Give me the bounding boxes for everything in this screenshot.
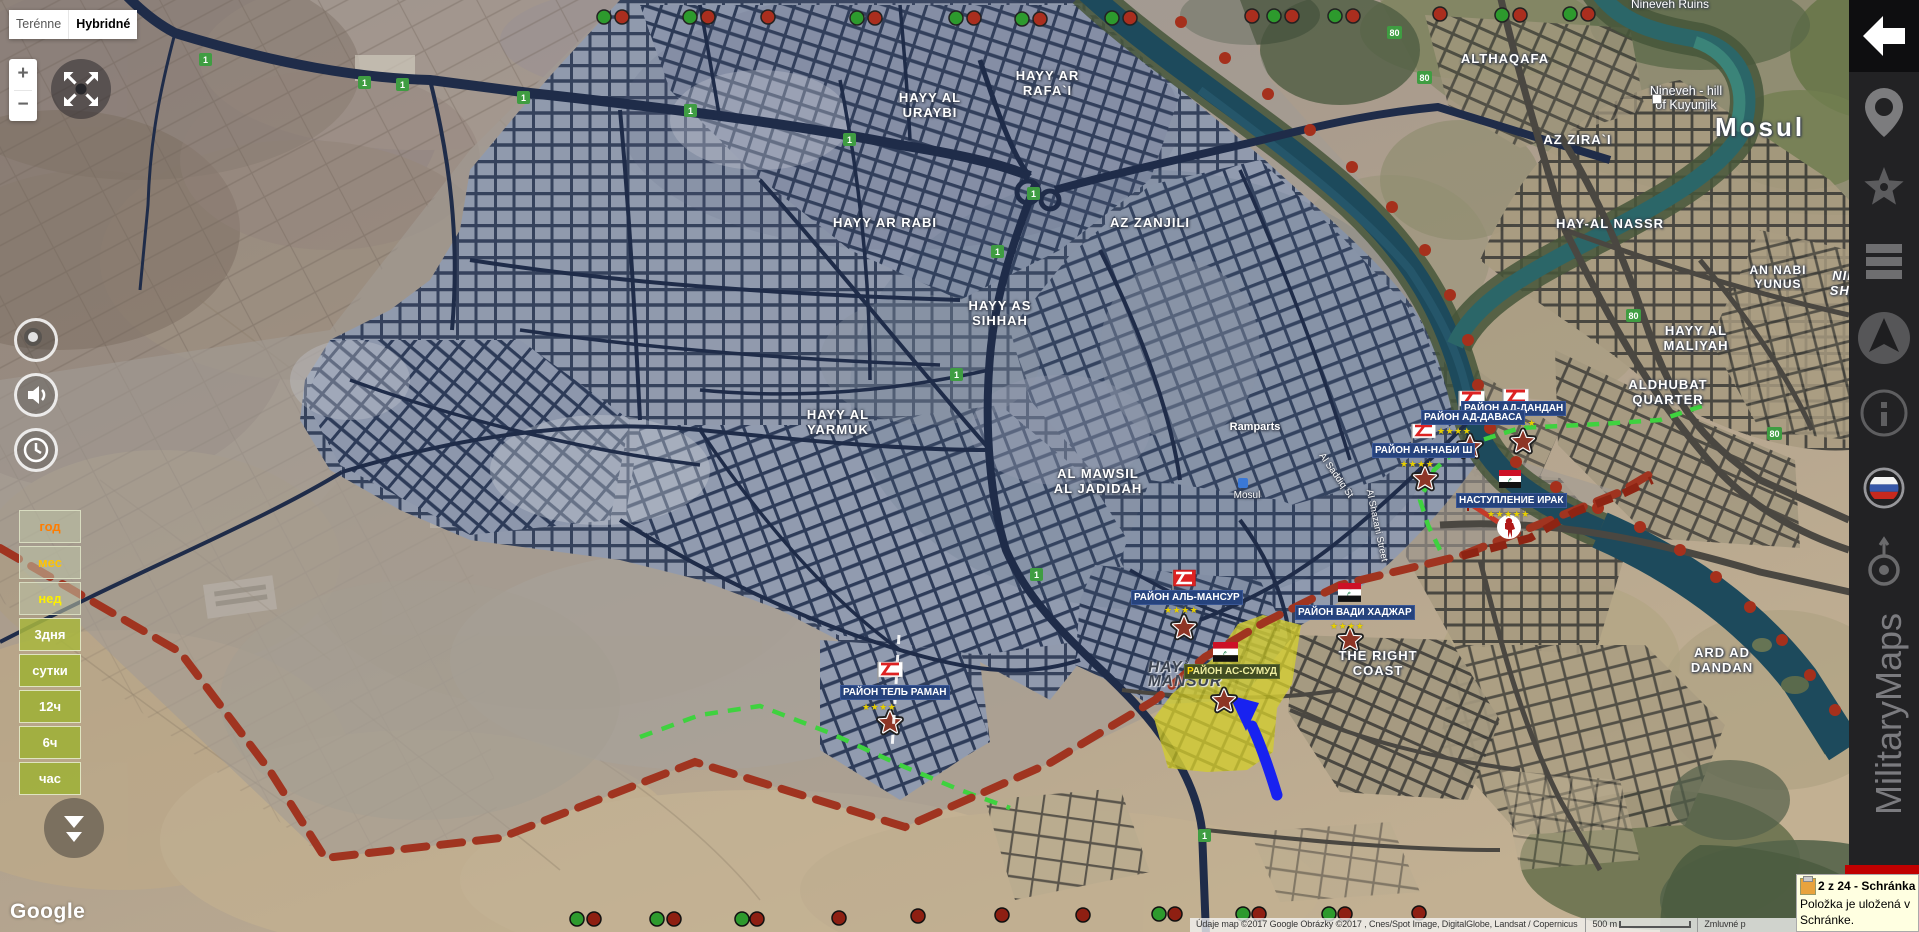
svg-text:م: م bbox=[1223, 650, 1227, 656]
svg-text:80: 80 bbox=[1419, 73, 1429, 83]
svg-text:1: 1 bbox=[362, 78, 367, 88]
svg-text:80: 80 bbox=[1769, 429, 1779, 439]
svg-text:1: 1 bbox=[1202, 831, 1207, 841]
svg-text:1: 1 bbox=[1034, 570, 1039, 580]
svg-text:1: 1 bbox=[1031, 189, 1036, 199]
svg-text:80: 80 bbox=[1628, 311, 1638, 321]
svg-text:1: 1 bbox=[521, 93, 526, 103]
svg-text:1: 1 bbox=[995, 247, 1000, 257]
svg-text:م: م bbox=[1347, 590, 1351, 596]
svg-text:1: 1 bbox=[400, 80, 405, 90]
svg-text:1: 1 bbox=[847, 135, 852, 145]
svg-text:1: 1 bbox=[954, 370, 959, 380]
svg-text:80: 80 bbox=[1389, 28, 1399, 38]
svg-text:MilitaryMaps: MilitaryMaps bbox=[1868, 613, 1909, 815]
svg-text:م: م bbox=[1508, 477, 1512, 483]
svg-text:1: 1 bbox=[688, 106, 693, 116]
svg-text:1: 1 bbox=[203, 55, 208, 65]
